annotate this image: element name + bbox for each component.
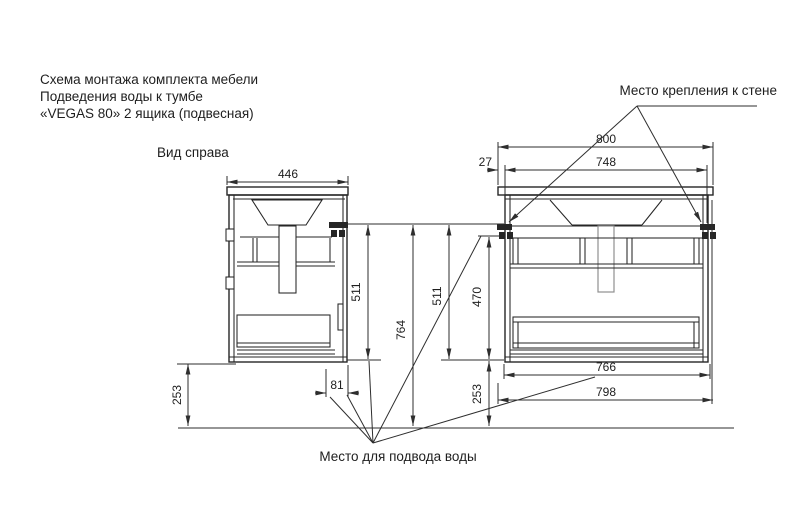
dim-798-label: 798 bbox=[596, 385, 616, 399]
front-countertop bbox=[498, 187, 713, 195]
mounting-diagram: Схема монтажа комплекта мебели Подведени… bbox=[0, 0, 800, 515]
front-view-cabinet bbox=[497, 187, 716, 362]
title-line-1: Схема монтажа комплекта мебели bbox=[40, 72, 258, 87]
dimension-470: 470 bbox=[470, 237, 489, 359]
title-line-3: «VEGAS 80» 2 ящика (подвесная) bbox=[40, 106, 254, 121]
dim-511-side-label: 511 bbox=[349, 282, 363, 301]
side-basin bbox=[252, 200, 322, 225]
side-bottom-drawer bbox=[237, 315, 330, 347]
dim-81-label: 81 bbox=[330, 378, 344, 392]
dim-446-label: 446 bbox=[278, 167, 298, 181]
dimension-253-left: 253 bbox=[170, 364, 188, 426]
title-line-2: Подведения воды к тумбе bbox=[40, 89, 203, 104]
front-carcass bbox=[505, 195, 708, 362]
wall-mount-callout: Место крепления к стене bbox=[509, 83, 777, 222]
side-back-rail bbox=[338, 304, 343, 330]
front-top-drawer bbox=[510, 238, 703, 268]
side-view-label: Вид справа bbox=[157, 145, 229, 160]
dimension-511-side: 511 bbox=[349, 225, 368, 359]
front-basin bbox=[550, 200, 662, 225]
wall-mount-label: Место крепления к стене bbox=[619, 83, 777, 98]
dim-470-label: 470 bbox=[470, 287, 484, 307]
dim-764-label: 764 bbox=[394, 320, 408, 340]
front-carcass-panels bbox=[505, 195, 708, 362]
dim-27-label: 27 bbox=[479, 155, 493, 169]
dimension-253-right: 253 bbox=[470, 361, 489, 426]
dimension-81: 81 bbox=[315, 378, 359, 393]
title-block: Схема монтажа комплекта мебели Подведени… bbox=[40, 72, 258, 121]
side-drain-pipe bbox=[279, 226, 296, 293]
dim-766-label: 766 bbox=[596, 360, 616, 374]
dim-511-front-label: 511 bbox=[430, 286, 444, 305]
water-supply-label: Место для подвода воды bbox=[319, 449, 476, 464]
dim-253-right-label: 253 bbox=[470, 384, 484, 404]
side-bottom-panels bbox=[237, 343, 335, 354]
front-drain-pipe bbox=[598, 226, 614, 292]
side-view-cabinet bbox=[226, 187, 348, 362]
dimension-511-front: 511 bbox=[430, 225, 449, 359]
drawing-page: Схема монтажа комплекта мебели Подведени… bbox=[0, 0, 800, 515]
dimension-446: 446 bbox=[227, 167, 348, 182]
front-bottom-drawer bbox=[510, 317, 703, 354]
dimension-764: 764 bbox=[394, 225, 413, 426]
dimension-748: 748 bbox=[505, 155, 707, 170]
dimension-798: 798 bbox=[498, 385, 713, 400]
side-wall-bracket bbox=[329, 222, 348, 237]
side-handle-bottom bbox=[226, 277, 234, 289]
dim-253-left-label: 253 bbox=[170, 385, 184, 405]
dim-748-label: 748 bbox=[596, 155, 616, 169]
dimension-27: 27 bbox=[479, 155, 498, 170]
side-handle-top bbox=[226, 229, 234, 241]
side-countertop bbox=[227, 187, 348, 195]
